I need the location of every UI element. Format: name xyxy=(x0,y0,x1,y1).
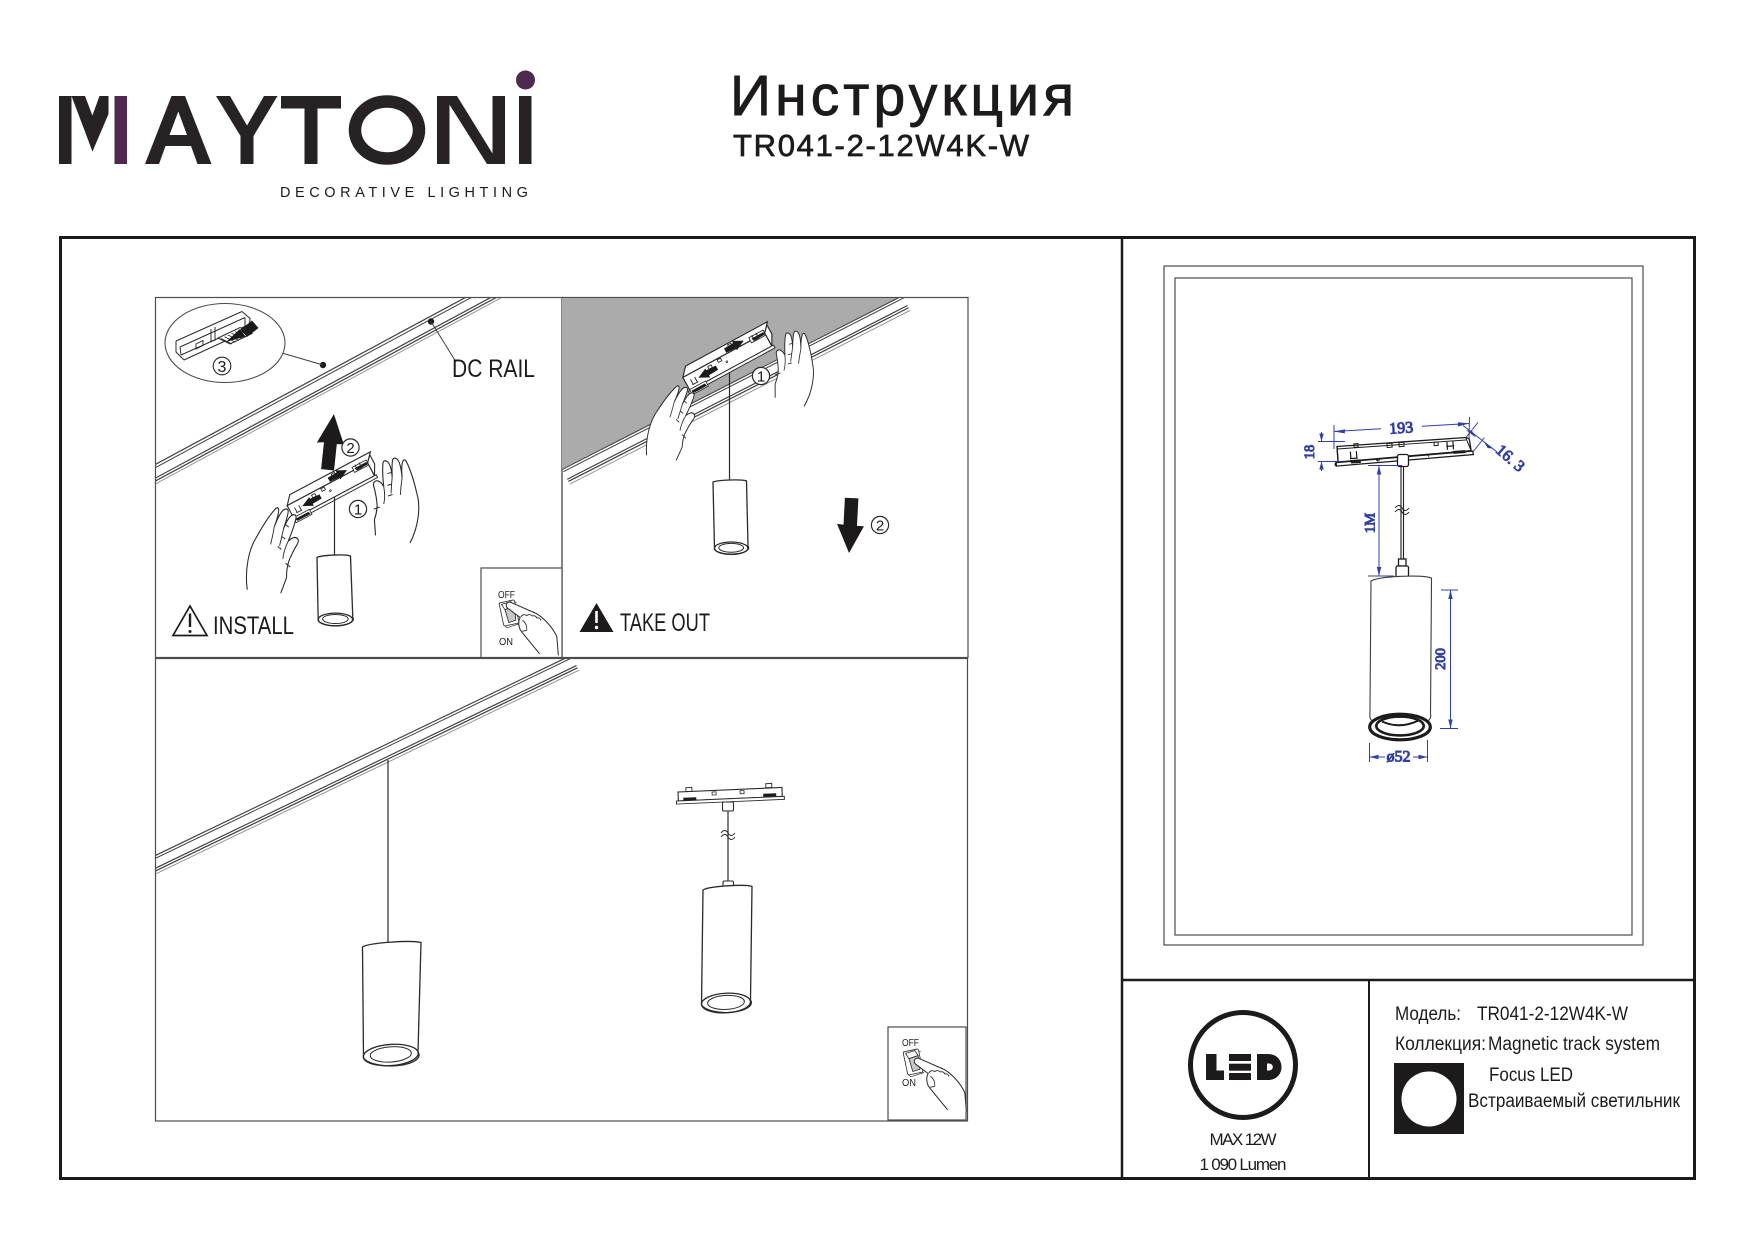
svg-text:193: 193 xyxy=(1389,419,1414,437)
svg-text:Модель:: Модель: xyxy=(1395,1004,1461,1025)
svg-text:Встраиваемый светильник: Встраиваемый светильник xyxy=(1468,1091,1681,1112)
svg-text:1: 1 xyxy=(757,369,765,386)
svg-text:Magnetic track system: Magnetic track system xyxy=(1488,1034,1660,1055)
svg-text:2: 2 xyxy=(876,518,884,535)
svg-text:TR041-2-12W4K-W: TR041-2-12W4K-W xyxy=(1477,1004,1628,1025)
svg-text:TAKE OUT: TAKE OUT xyxy=(620,609,710,637)
svg-text:OFF: OFF xyxy=(902,1038,919,1049)
svg-text:ON: ON xyxy=(499,637,513,648)
svg-text:TR041-2-12W4K-W: TR041-2-12W4K-W xyxy=(733,128,1030,163)
svg-text:DECORATIVE LIGHTING: DECORATIVE LIGHTING xyxy=(280,185,531,201)
svg-text:INSTALL: INSTALL xyxy=(213,612,294,640)
svg-text:1 090 Lumen: 1 090 Lumen xyxy=(1200,1155,1287,1174)
svg-text:200: 200 xyxy=(1433,648,1449,670)
svg-text:16. 3: 16. 3 xyxy=(1492,442,1527,476)
svg-text:Коллекция:: Коллекция: xyxy=(1395,1034,1486,1055)
svg-text:ø52: ø52 xyxy=(1387,749,1411,766)
svg-text:DC RAIL: DC RAIL xyxy=(452,355,535,383)
svg-text:Focus LED: Focus LED xyxy=(1489,1065,1573,1086)
svg-text:OFF: OFF xyxy=(498,590,515,601)
svg-text:1: 1 xyxy=(354,502,362,519)
svg-text:ON: ON xyxy=(902,1078,916,1089)
svg-text:18: 18 xyxy=(1302,445,1318,460)
svg-text:Инструкция: Инструкция xyxy=(730,64,1074,128)
svg-text:MAX 12W: MAX 12W xyxy=(1210,1130,1277,1149)
svg-text:2: 2 xyxy=(346,440,354,457)
svg-text:3: 3 xyxy=(218,359,227,376)
svg-text:1M: 1M xyxy=(1363,513,1379,533)
